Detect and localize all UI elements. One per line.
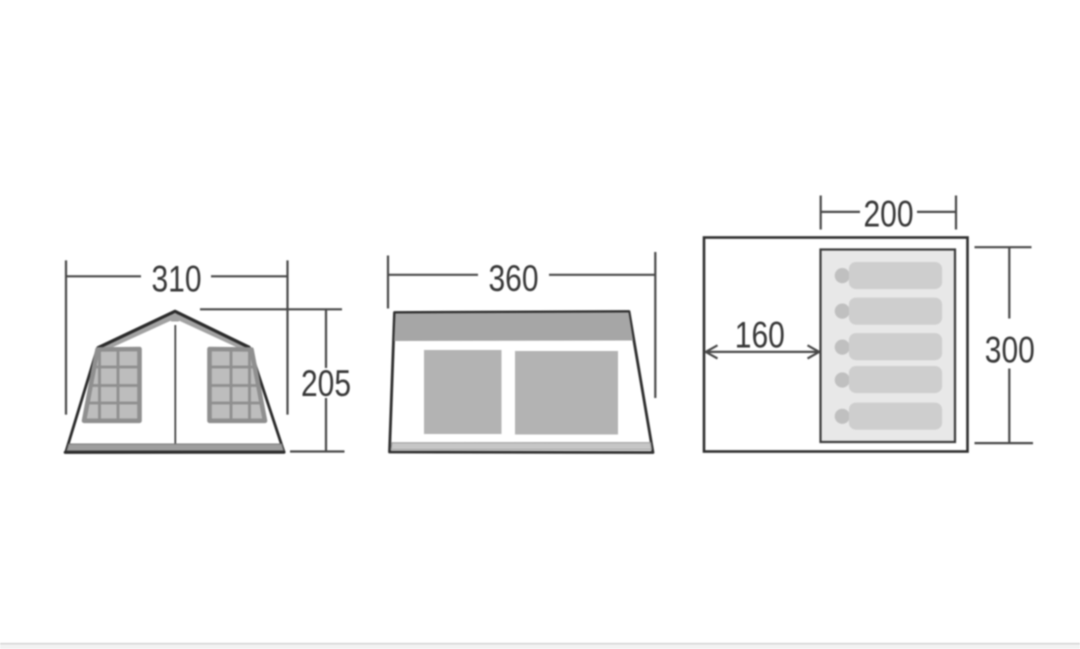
svg-text:310: 310	[151, 258, 201, 300]
svg-text:360: 360	[488, 258, 538, 300]
svg-text:205: 205	[301, 363, 351, 405]
svg-text:200: 200	[863, 193, 913, 235]
svg-text:160: 160	[735, 314, 785, 356]
svg-text:300: 300	[985, 329, 1035, 371]
